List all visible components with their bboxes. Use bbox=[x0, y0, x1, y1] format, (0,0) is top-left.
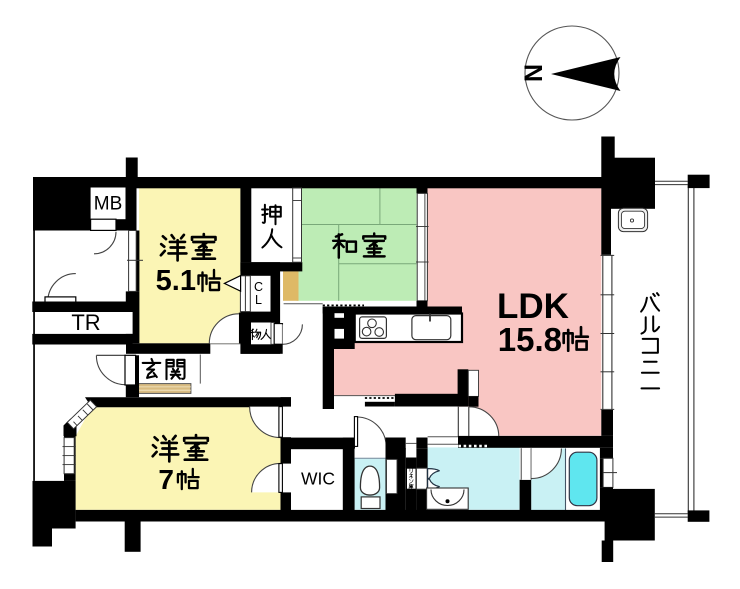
svg-text:7: 7 bbox=[158, 464, 174, 495]
svg-text:15.8: 15.8 bbox=[498, 321, 562, 358]
svg-text:WIC: WIC bbox=[301, 469, 335, 489]
svg-text:N: N bbox=[520, 64, 548, 82]
svg-text:MB: MB bbox=[94, 194, 123, 215]
svg-text:C: C bbox=[254, 280, 263, 294]
svg-text:TR: TR bbox=[71, 310, 100, 335]
svg-text:5.1: 5.1 bbox=[156, 265, 196, 297]
svg-text:L: L bbox=[255, 293, 262, 307]
